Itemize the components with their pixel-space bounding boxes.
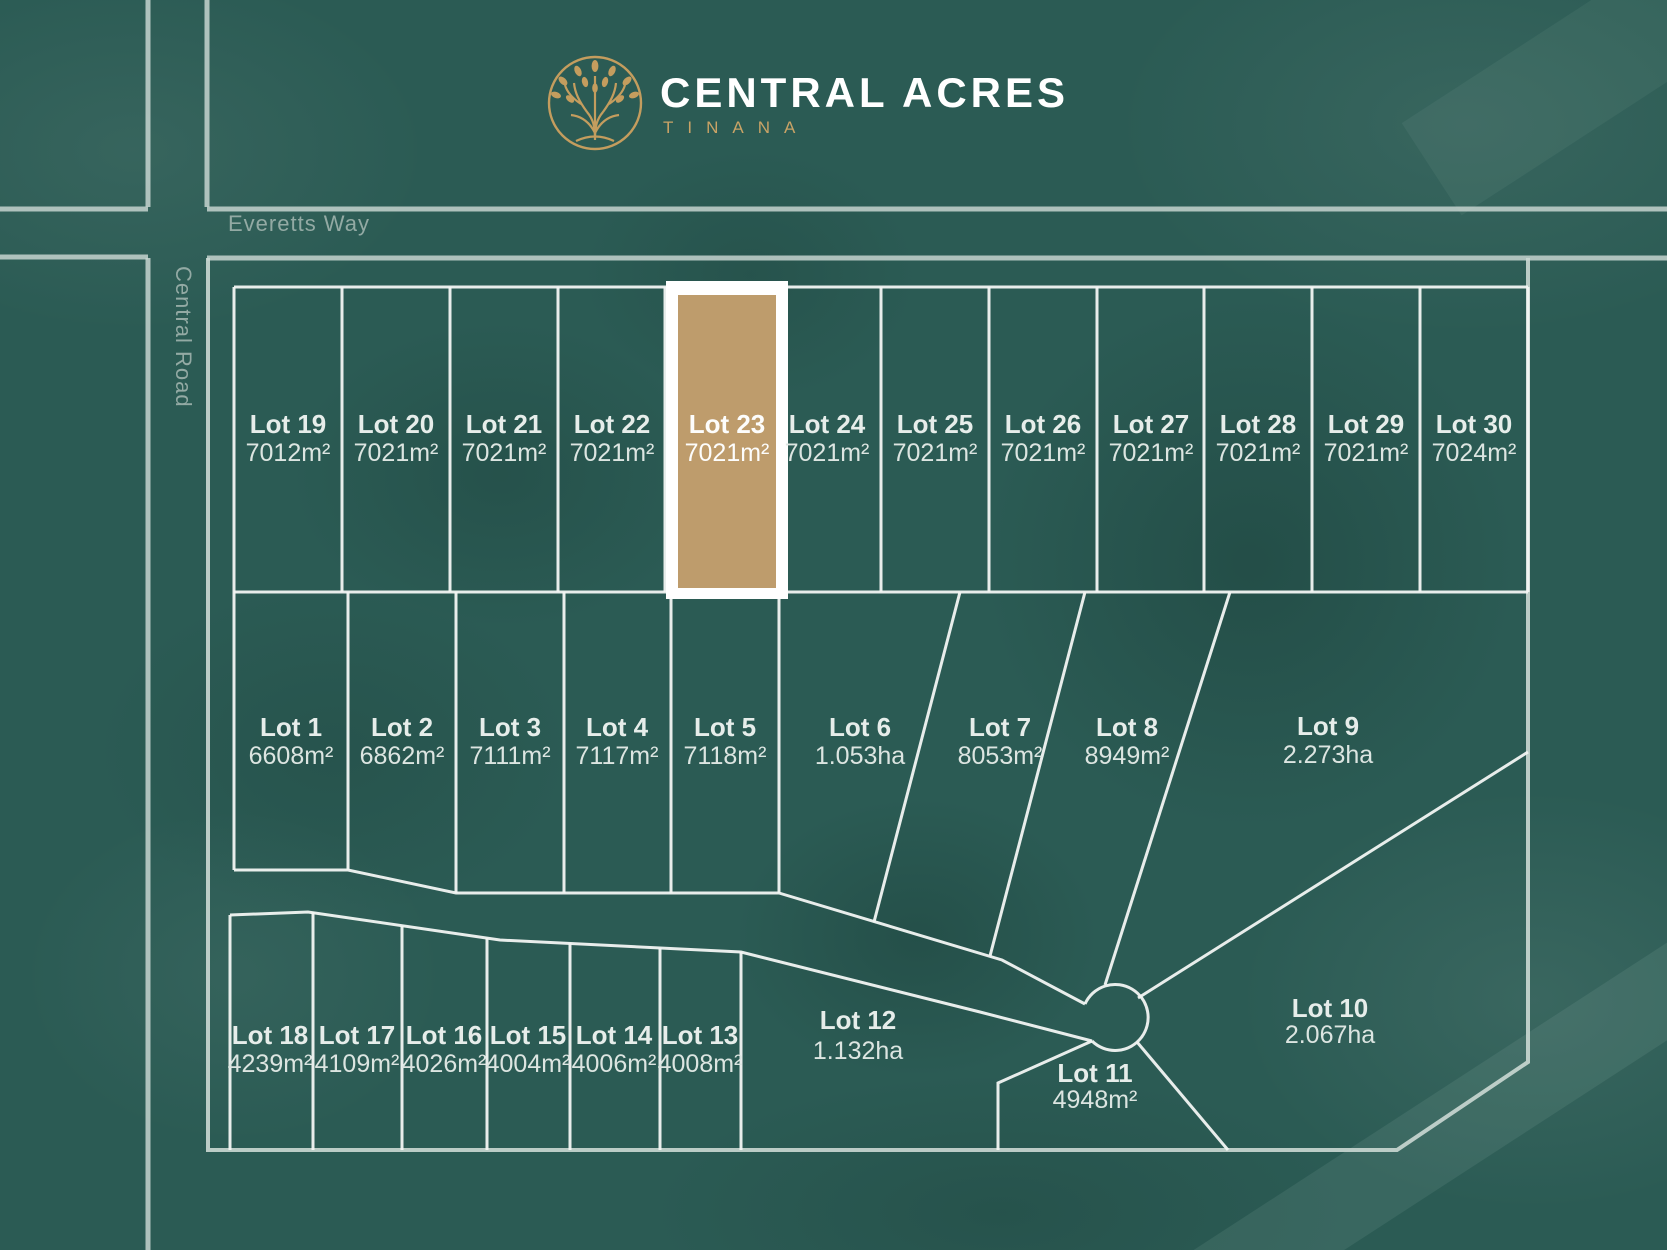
lot-label: Lot 18 xyxy=(232,1020,309,1050)
lot-12[interactable]: Lot 12 1.132ha xyxy=(813,1005,903,1065)
lot-label: Lot 19 xyxy=(250,409,327,439)
lot-label: Lot 20 xyxy=(358,409,435,439)
lot-label: Lot 25 xyxy=(897,409,974,439)
lot-area: 6862m² xyxy=(360,742,445,770)
lot-label: Lot 16 xyxy=(406,1020,483,1050)
lot-8[interactable]: Lot 8 8949m² xyxy=(1085,712,1170,770)
lot-17[interactable]: Lot 17 4109m² xyxy=(315,1020,400,1078)
lot-21[interactable]: Lot 21 7021m² xyxy=(462,409,547,467)
lot-label: Lot 17 xyxy=(319,1020,396,1050)
lot-label: Lot 11 xyxy=(1057,1058,1132,1088)
lot-label: Lot 6 xyxy=(829,712,891,742)
lot-30[interactable]: Lot 30 7024m² xyxy=(1432,409,1517,467)
lot-area: 7021m² xyxy=(1324,439,1409,467)
lot-area: 4948m² xyxy=(1053,1086,1138,1114)
lot-label: Lot 12 xyxy=(820,1005,897,1035)
road-label-central-road: Central Road xyxy=(171,266,196,408)
lot-label: Lot 2 xyxy=(371,712,433,742)
lot-9-10-divider xyxy=(1138,752,1528,998)
lot-28[interactable]: Lot 28 7021m² xyxy=(1216,409,1301,467)
lot-area: 7021m² xyxy=(1001,439,1086,467)
lot-area: 7021m² xyxy=(785,439,870,467)
estate-map: CENTRAL ACRES TINANA Everetts Way Centra… xyxy=(0,0,1667,1250)
lot-area: 7024m² xyxy=(1432,439,1517,467)
lot-label: Lot 7 xyxy=(969,712,1031,742)
lot-label: Lot 3 xyxy=(479,712,541,742)
lot-label: Lot 5 xyxy=(694,712,756,742)
lot-5[interactable]: Lot 5 7118m² xyxy=(684,712,767,770)
lot-area: 7021m² xyxy=(893,439,978,467)
lot-area: 4004m² xyxy=(486,1050,571,1078)
lot-label: Lot 21 xyxy=(466,409,543,439)
lot-area: 7117m² xyxy=(576,742,659,770)
lot-label: Lot 26 xyxy=(1005,409,1082,439)
lot-area: 7021m² xyxy=(462,439,547,467)
lot-7-8-divider xyxy=(990,592,1085,956)
lot-area: 6608m² xyxy=(249,742,334,770)
lot-area: 8053m² xyxy=(958,742,1043,770)
lot-area: 7012m² xyxy=(246,439,331,467)
lot-25[interactable]: Lot 25 7021m² xyxy=(893,409,978,467)
lot-label: Lot 27 xyxy=(1113,409,1190,439)
lot-label: Lot 24 xyxy=(789,409,866,439)
lot-area: 8949m² xyxy=(1085,742,1170,770)
lot-11-east-boundary xyxy=(1137,1042,1228,1150)
lot-23[interactable]: Lot 23 7021m² xyxy=(685,409,770,467)
lot-11[interactable]: Lot 11 4948m² xyxy=(1053,1058,1138,1114)
lot-7[interactable]: Lot 7 8053m² xyxy=(958,712,1043,770)
lot-area: 7021m² xyxy=(1216,439,1301,467)
tree-logo-icon xyxy=(549,57,641,149)
lot-area: 4109m² xyxy=(315,1050,400,1078)
lot-area: 7021m² xyxy=(570,439,655,467)
lot-1[interactable]: Lot 1 6608m² xyxy=(249,712,334,770)
lot-6[interactable]: Lot 6 1.053ha xyxy=(815,712,905,770)
lot-19[interactable]: Lot 19 7012m² xyxy=(246,409,331,467)
lot-area: 2.273ha xyxy=(1283,741,1373,769)
lot-label: Lot 14 xyxy=(576,1020,653,1050)
brand-location: TINANA xyxy=(663,118,809,137)
lot-2[interactable]: Lot 2 6862m² xyxy=(360,712,445,770)
lot-area: 4026m² xyxy=(402,1050,487,1078)
lot-label: Lot 15 xyxy=(490,1020,567,1050)
lot-label: Lot 8 xyxy=(1096,712,1158,742)
lot-15[interactable]: Lot 15 4004m² xyxy=(486,1020,571,1078)
lot-area: 4006m² xyxy=(572,1050,657,1078)
lot-10[interactable]: Lot 10 2.067ha xyxy=(1285,993,1375,1049)
brand-name: CENTRAL ACRES xyxy=(660,69,1069,116)
lot-label: Lot 13 xyxy=(662,1020,739,1050)
lot-label: Lot 4 xyxy=(586,712,649,742)
lot-area: 4239m² xyxy=(228,1050,313,1078)
lot-8-9-divider xyxy=(1105,592,1230,985)
lot-16[interactable]: Lot 16 4026m² xyxy=(402,1020,487,1078)
lot-20[interactable]: Lot 20 7021m² xyxy=(354,409,439,467)
lot-label: Lot 30 xyxy=(1436,409,1513,439)
lot-label: Lot 28 xyxy=(1220,409,1297,439)
road-label-everetts-way: Everetts Way xyxy=(228,211,370,236)
lot-area: 7021m² xyxy=(354,439,439,467)
lot-area: 4008m² xyxy=(658,1050,743,1078)
lot-27[interactable]: Lot 27 7021m² xyxy=(1109,409,1194,467)
lot-label: Lot 23 xyxy=(689,409,766,439)
lot-area: 2.067ha xyxy=(1285,1021,1375,1049)
lot-9[interactable]: Lot 9 2.273ha xyxy=(1283,711,1373,769)
lot-3[interactable]: Lot 3 7111m² xyxy=(469,712,550,770)
lot-13[interactable]: Lot 13 4008m² xyxy=(658,1020,743,1078)
lot-label: Lot 29 xyxy=(1328,409,1405,439)
lot-29[interactable]: Lot 29 7021m² xyxy=(1324,409,1409,467)
lot-area: 7021m² xyxy=(1109,439,1194,467)
lot-area: 7118m² xyxy=(684,742,767,770)
brand-header: CENTRAL ACRES TINANA xyxy=(549,57,1069,149)
internal-road-north-edge xyxy=(779,893,1085,1004)
lot-area: 7111m² xyxy=(469,742,550,770)
lot-area: 1.132ha xyxy=(813,1037,903,1065)
lots-1-5-bottom-line xyxy=(234,870,779,893)
lot-4[interactable]: Lot 4 7117m² xyxy=(576,712,659,770)
lot-18[interactable]: Lot 18 4239m² xyxy=(228,1020,313,1078)
lot-14[interactable]: Lot 14 4006m² xyxy=(572,1020,657,1078)
lot-22[interactable]: Lot 22 7021m² xyxy=(570,409,655,467)
lot-label: Lot 1 xyxy=(260,712,322,742)
lot-label: Lot 9 xyxy=(1297,711,1359,741)
lot-label: Lot 22 xyxy=(574,409,651,439)
lot-area: 7021m² xyxy=(685,439,770,467)
cul-de-sac-bulb xyxy=(1085,984,1148,1050)
lot-26[interactable]: Lot 26 7021m² xyxy=(1001,409,1086,467)
lot-24[interactable]: Lot 24 7021m² xyxy=(785,409,870,467)
lot-label: Lot 10 xyxy=(1292,993,1369,1023)
lot-area: 1.053ha xyxy=(815,742,905,770)
